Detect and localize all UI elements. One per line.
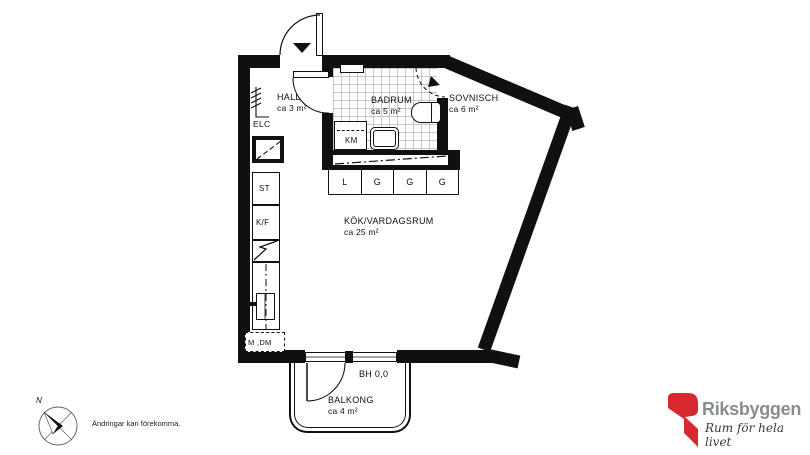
compass-north-label: N xyxy=(36,396,42,405)
closet-cell: G xyxy=(426,169,460,195)
brand-wordmark: Riksbyggen xyxy=(702,399,801,420)
room-label-balkong: BALKONGca 4 m² xyxy=(328,395,374,417)
window-mullion xyxy=(345,351,353,363)
room-name: BADRUM xyxy=(371,95,412,105)
room-area: ca 25 m² xyxy=(344,227,379,237)
hat-rack-icon xyxy=(251,87,269,117)
closet-cell: L xyxy=(328,169,362,195)
room-area: ca 5 m² xyxy=(371,106,401,116)
riksbyggen-logo-icon xyxy=(668,393,698,447)
wall-stub-bottom-right xyxy=(486,349,520,368)
washbasin xyxy=(370,127,399,150)
room-name: BALKONG xyxy=(328,395,374,405)
shaft-box xyxy=(252,136,284,163)
toilet xyxy=(411,102,441,123)
room-label-sovnisch: SOVNISCHca 6 m² xyxy=(449,93,498,115)
floor-plan: L G G G xyxy=(0,0,810,455)
room-label-hall: HALLca 3 m² xyxy=(277,92,307,114)
washing-machine-detail xyxy=(337,124,364,131)
closet-cell: G xyxy=(393,169,427,195)
bathroom-door-leaf xyxy=(293,71,329,78)
exterior-wall-right-slanted xyxy=(478,105,577,352)
compass-icon xyxy=(39,407,77,445)
room-label-kok: KÖK/VARDAGSRUMca 25 m² xyxy=(344,216,434,238)
room-name: KÖK/VARDAGSRUM xyxy=(344,216,434,226)
label-kf: K/F xyxy=(256,217,269,228)
entrance-door-swing xyxy=(280,15,320,55)
label-bh: BH 0,0 xyxy=(359,369,388,380)
closet-header-inset xyxy=(332,154,449,166)
entrance-arrow-icon xyxy=(293,43,311,53)
stove xyxy=(252,240,280,262)
room-area: ca 6 m² xyxy=(449,104,479,114)
exterior-wall-left xyxy=(238,55,250,363)
closet-label: L xyxy=(342,177,347,187)
kitchen-sink xyxy=(256,293,275,320)
room-area: ca 3 m² xyxy=(277,103,307,113)
closet-label: G xyxy=(439,177,446,187)
brand-tagline: Rum för hela livet xyxy=(705,421,810,449)
label-elc: ELC xyxy=(253,119,270,130)
label-st: ST xyxy=(259,183,270,194)
disclaimer-text: Ändringar kan förekomma. xyxy=(92,419,180,428)
room-name: SOVNISCH xyxy=(449,93,498,103)
room-name: HALL xyxy=(277,92,301,102)
closet-cell: G xyxy=(361,169,395,195)
room-label-badrum: BADRUMca 5 m² xyxy=(371,95,412,117)
room-area: ca 4 m² xyxy=(328,406,358,416)
closet-row: L G G G xyxy=(328,169,459,195)
toilet-tank-line xyxy=(431,103,432,122)
entrance-door-leaf xyxy=(316,13,323,56)
label-mdm: M ,DM xyxy=(248,337,272,348)
exterior-wall-bottom-right xyxy=(397,350,492,363)
closet-label: G xyxy=(374,177,381,187)
bathroom-niche xyxy=(340,64,364,73)
closet-label: G xyxy=(406,177,413,187)
label-km: KM xyxy=(345,135,358,146)
washbasin-inner xyxy=(373,130,396,147)
